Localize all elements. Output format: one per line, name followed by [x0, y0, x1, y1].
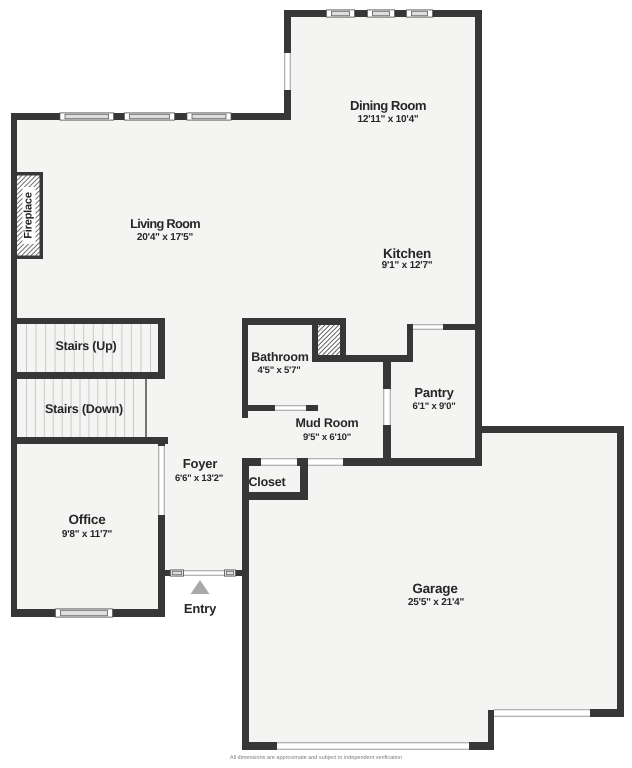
svg-text:9'1" x 12'7": 9'1" x 12'7" — [382, 260, 433, 271]
svg-text:Mud Room: Mud Room — [296, 416, 359, 430]
svg-text:Kitchen: Kitchen — [383, 246, 431, 261]
svg-text:Closet: Closet — [248, 475, 286, 489]
svg-text:25'5" x 21'4": 25'5" x 21'4" — [408, 597, 465, 608]
svg-text:Dining Room: Dining Room — [350, 98, 426, 113]
svg-text:Office: Office — [68, 512, 106, 527]
svg-text:Fireplace: Fireplace — [23, 192, 35, 239]
svg-text:6'6" x 13'2": 6'6" x 13'2" — [175, 473, 223, 484]
svg-text:All dimensions are approximate: All dimensions are approximate and subje… — [230, 755, 402, 761]
svg-text:Stairs (Up): Stairs (Up) — [55, 339, 116, 353]
svg-text:12'11" x 10'4": 12'11" x 10'4" — [358, 114, 419, 125]
svg-text:Pantry: Pantry — [414, 385, 454, 400]
svg-text:Living Room: Living Room — [130, 216, 200, 231]
svg-text:4'5" x 5'7": 4'5" x 5'7" — [257, 365, 300, 376]
svg-text:Garage: Garage — [412, 581, 458, 596]
svg-text:Bathroom: Bathroom — [251, 350, 309, 364]
svg-text:9'8" x 11'7": 9'8" x 11'7" — [62, 529, 113, 540]
svg-text:Foyer: Foyer — [183, 456, 218, 471]
svg-text:Entry: Entry — [184, 601, 217, 616]
svg-text:6'1" x 9'0": 6'1" x 9'0" — [412, 401, 455, 412]
svg-text:Stairs (Down): Stairs (Down) — [45, 402, 123, 416]
svg-text:20'4" x 17'5": 20'4" x 17'5" — [137, 232, 194, 243]
svg-text:9'5" x 6'10": 9'5" x 6'10" — [303, 432, 351, 443]
